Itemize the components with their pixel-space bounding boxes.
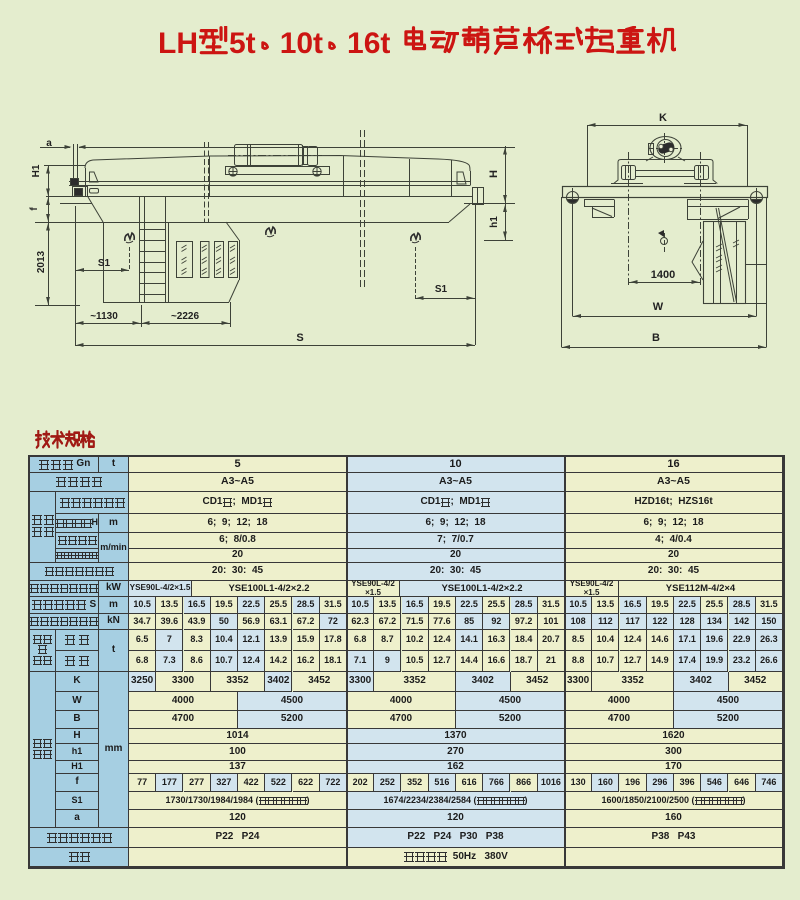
svg-text:S: S [296,332,303,344]
svg-text:1400: 1400 [651,269,675,281]
svg-text:~2226: ~2226 [171,311,200,322]
svg-text:h1: h1 [489,216,500,228]
svg-text:S1: S1 [435,284,448,295]
svg-text:~1130: ~1130 [90,311,118,322]
svg-text:S1: S1 [98,258,111,269]
svg-text:2013: 2013 [36,250,47,273]
svg-text:B: B [652,332,660,344]
svg-text:a: a [46,138,52,149]
svg-text:K: K [659,112,667,124]
svg-text:H1: H1 [31,164,42,177]
svg-text:W: W [653,301,664,313]
svg-text:H: H [488,170,500,178]
svg-text:f: f [29,207,40,211]
